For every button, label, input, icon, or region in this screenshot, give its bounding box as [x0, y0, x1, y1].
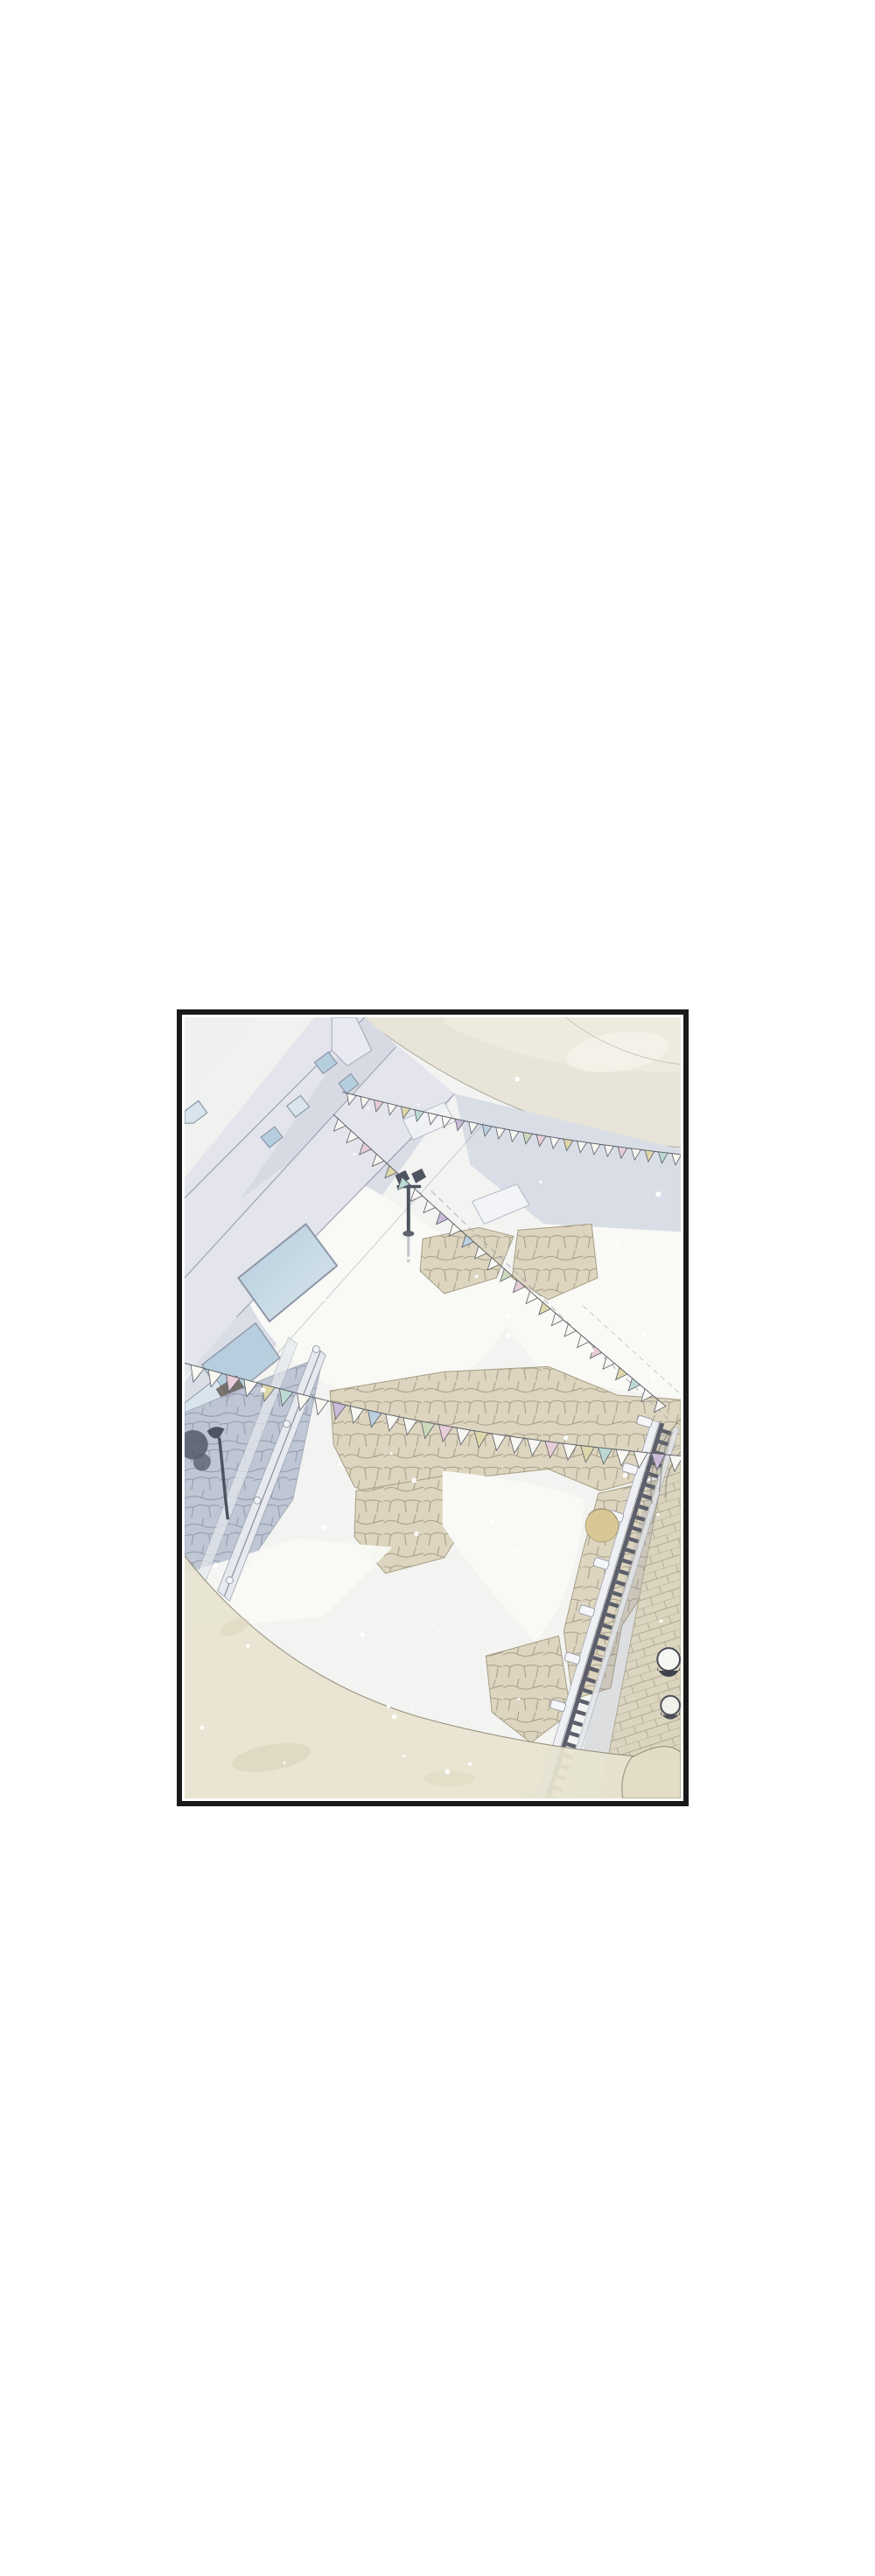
snowflake [517, 1698, 520, 1700]
snowflake [371, 1360, 374, 1363]
snowflake [614, 1243, 619, 1247]
snowflake [563, 1435, 569, 1441]
snowflake [642, 1332, 647, 1337]
snowflake [650, 1375, 655, 1380]
snowflake [468, 1763, 472, 1766]
snowflake [324, 1299, 326, 1302]
snowflake [655, 1191, 661, 1197]
snowflake [246, 1644, 250, 1649]
railing-finial [657, 1648, 680, 1671]
comic-panel [177, 1009, 689, 1806]
snowflake [475, 1274, 479, 1278]
snowflake [390, 1452, 393, 1455]
snowflake [514, 1077, 520, 1082]
snowflake [367, 1107, 369, 1110]
snowflake [360, 1632, 365, 1637]
snowflake [489, 1519, 494, 1525]
snowflake [514, 1549, 517, 1553]
snowflake [338, 1463, 341, 1466]
snowflake [411, 1709, 413, 1711]
snowflake [573, 1524, 576, 1526]
snowflake [590, 1348, 594, 1352]
snowflake [660, 1619, 663, 1623]
snowflake [417, 1103, 420, 1106]
snowflake [506, 1313, 510, 1317]
snowflake [353, 1153, 355, 1155]
street-scene-illustration [185, 1017, 681, 1798]
snowflake [213, 1563, 218, 1567]
snowflake [414, 1532, 419, 1537]
comic-page: { "page": { "background": "#ffffff" }, "… [0, 0, 875, 2576]
snowflake [432, 1623, 435, 1625]
snowflake [407, 1256, 410, 1260]
snowflake [444, 1769, 450, 1774]
snowflake [623, 1473, 628, 1478]
snowflake [200, 1726, 205, 1730]
snowflake [411, 1478, 416, 1483]
snowflake [402, 1755, 405, 1757]
snowflake [261, 1387, 266, 1393]
snowflake [392, 1714, 397, 1720]
snowflake [322, 1525, 327, 1530]
snowflake [387, 1705, 390, 1708]
snowflake [506, 1333, 511, 1338]
snowflake [283, 1762, 286, 1764]
snowflake [539, 1180, 542, 1183]
snowflake [656, 1513, 659, 1516]
railing-finial [661, 1696, 680, 1715]
